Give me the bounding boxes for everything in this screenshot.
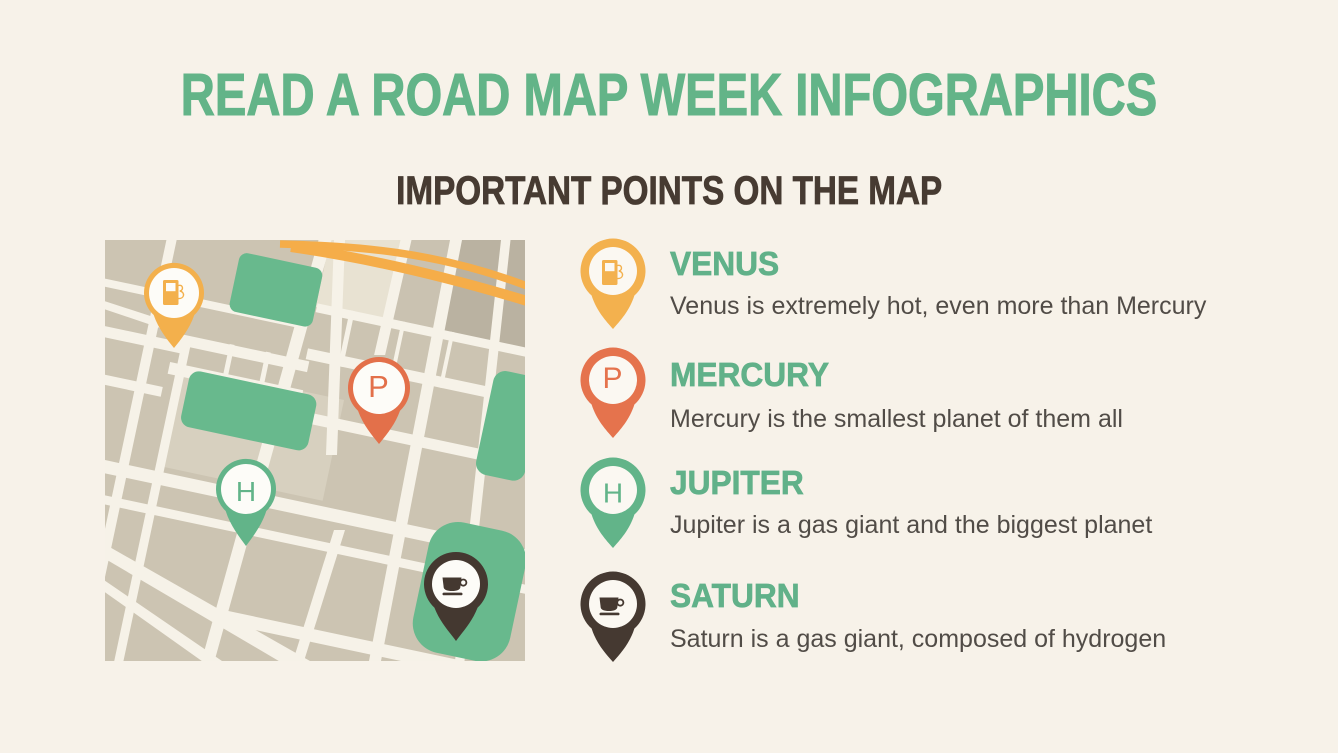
svg-text:H: H xyxy=(236,476,256,507)
svg-text:P: P xyxy=(602,362,622,395)
svg-text:H: H xyxy=(603,478,623,509)
svg-text:P: P xyxy=(368,369,389,404)
